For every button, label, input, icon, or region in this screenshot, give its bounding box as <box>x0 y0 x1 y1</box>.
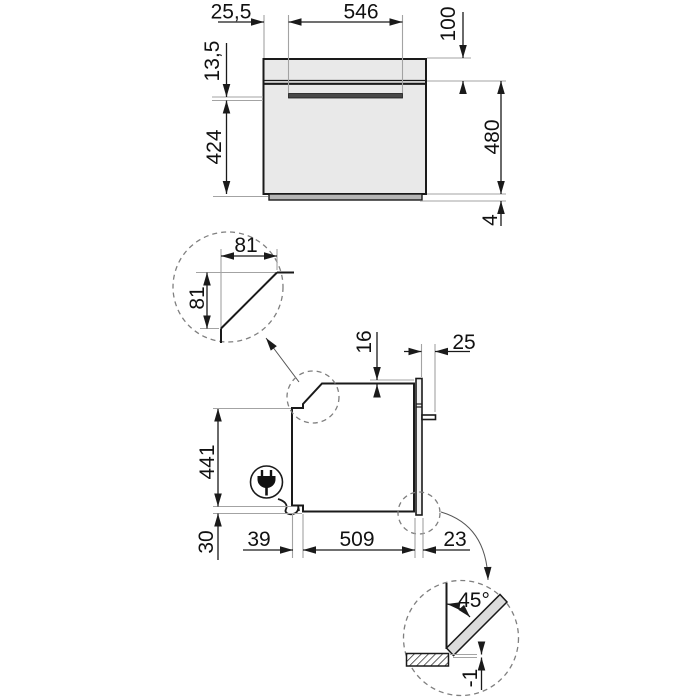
dim-label-door-thickness: 23 <box>443 528 466 551</box>
dim-label-bottom-clearance: 30 <box>195 530 218 553</box>
dim-label-front-clearance: 39 <box>247 528 270 551</box>
oven-side-body <box>292 384 414 512</box>
dim-label-handle-width: 546 <box>343 1 378 24</box>
dim-label-body-depth: 509 <box>339 528 374 551</box>
door-handle-front <box>289 94 403 99</box>
dim-label-cut-width: 81 <box>234 234 257 257</box>
floor-hatch <box>407 654 449 667</box>
dim-label-body-height: 441 <box>196 444 219 479</box>
dim-label-offset-left: 25,5 <box>211 1 252 24</box>
corner-detail: 81 81 <box>173 232 299 382</box>
side-view <box>251 371 441 534</box>
oven-plinth <box>269 194 422 200</box>
corner-chamfer-line <box>221 273 277 329</box>
dim-label-base-clearance: 4 <box>479 214 502 226</box>
door-handle-side <box>422 415 436 420</box>
dim-label-handle-depth: 25 <box>452 331 475 354</box>
drawing-svg: 25,5 546 100 13,5 424 480 4 81 81 <box>0 0 700 700</box>
dim-label-opening-angle: 45° <box>458 589 490 612</box>
dim-label-top-clearance: 16 <box>353 330 376 353</box>
dim-label-cut-height: 81 <box>186 286 209 309</box>
power-plug-icon <box>251 466 283 498</box>
dim-label-handle-offset: 13,5 <box>201 41 224 82</box>
dim-label-panel-height: 100 <box>437 6 460 41</box>
dim-label-niche-height: 480 <box>481 119 504 154</box>
installation-drawing: 25,5 546 100 13,5 424 480 4 81 81 <box>0 0 700 700</box>
oven-door-side <box>416 379 422 516</box>
oven-front-body <box>264 59 427 194</box>
corner-detail-leader <box>266 338 299 382</box>
dim-label-floor-clearance: -1 <box>459 669 482 688</box>
dim-label-door-height: 424 <box>203 129 226 164</box>
front-view <box>264 59 427 200</box>
